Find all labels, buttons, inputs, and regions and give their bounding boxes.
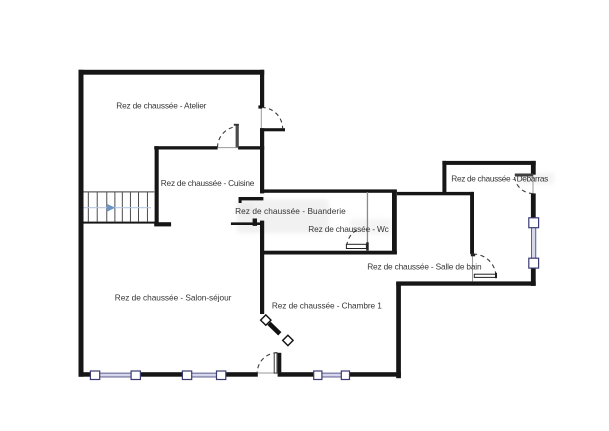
svg-text:Rez de chaussée - Salle de bai: Rez de chaussée - Salle de bain bbox=[367, 262, 482, 272]
svg-text:Rez de chaussée - Salon-séjour: Rez de chaussée - Salon-séjour bbox=[115, 292, 232, 302]
svg-text:Rez de chaussée - Débarras: Rez de chaussée - Débarras bbox=[451, 174, 548, 184]
svg-text:Rez de chaussée - Chambre 1: Rez de chaussée - Chambre 1 bbox=[272, 301, 382, 311]
svg-text:Rez de chaussée - Atelier: Rez de chaussée - Atelier bbox=[116, 101, 206, 111]
svg-text:Rez de chaussée - Buanderie: Rez de chaussée - Buanderie bbox=[235, 206, 346, 216]
svg-text:Rez de chaussée - Cuisine: Rez de chaussée - Cuisine bbox=[161, 178, 255, 188]
svg-text:Rez de chaussée - Wc: Rez de chaussée - Wc bbox=[308, 224, 389, 234]
